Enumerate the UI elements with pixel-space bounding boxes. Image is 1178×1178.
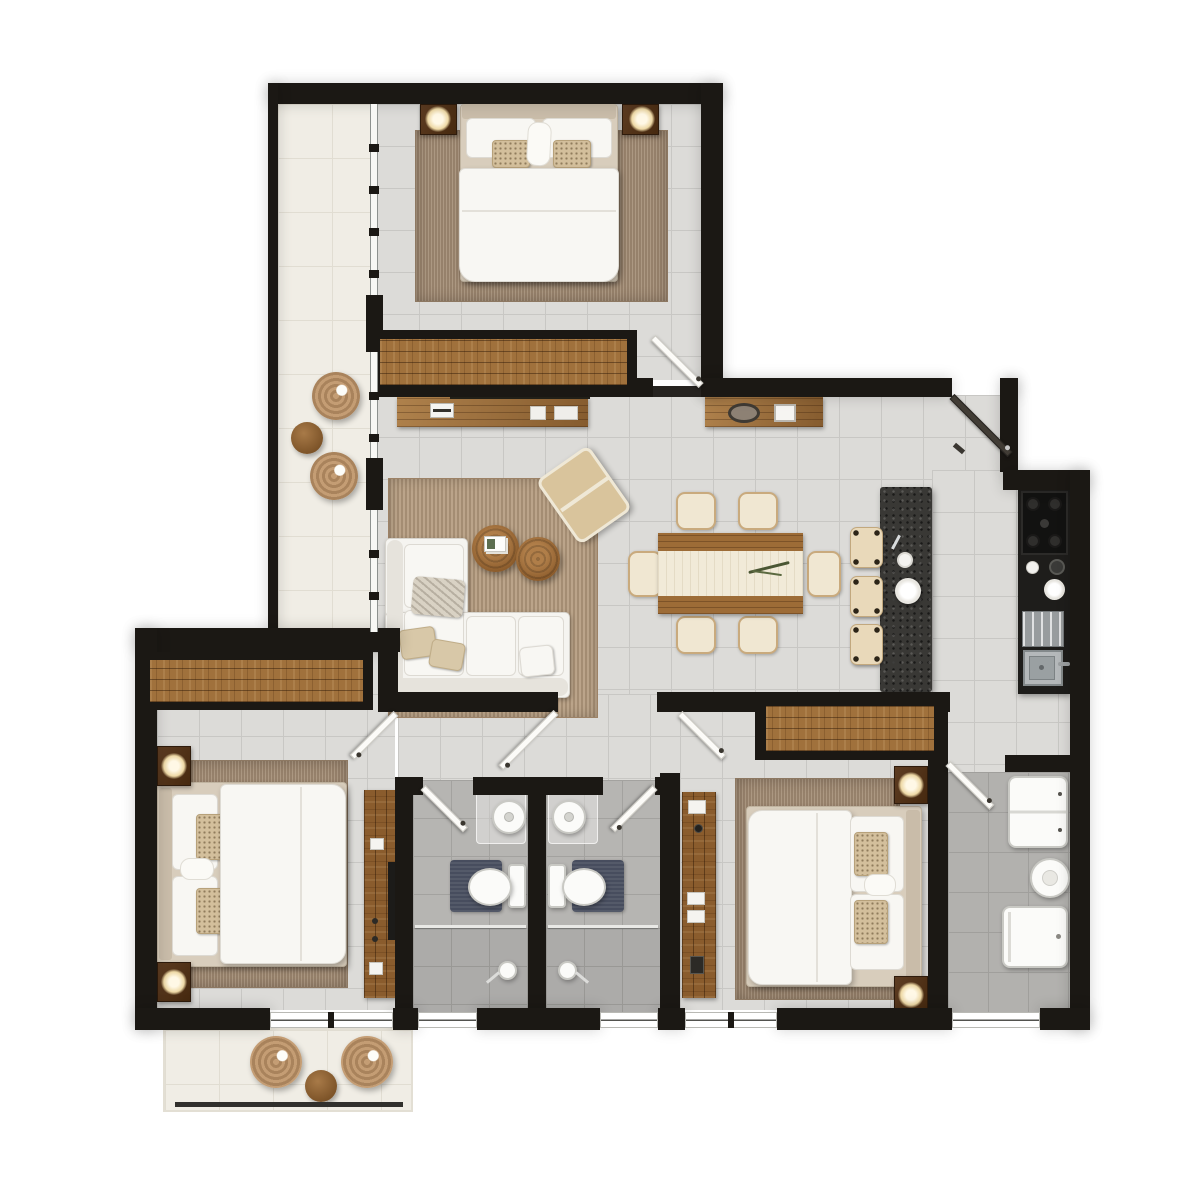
glass-mullion-3: [369, 228, 379, 236]
balcony-bottom-side-table: [305, 1070, 337, 1102]
island-plate-small: [897, 552, 913, 568]
bed-left-duvet-fold: [300, 787, 302, 961]
bedroom-left-desk-logo: [369, 962, 383, 975]
balcony-glass-wall-2: [370, 352, 378, 458]
wall-right-outer: [1070, 470, 1090, 1030]
wall-bath-right-jamb: [655, 777, 665, 795]
glass-mullion-4: [369, 270, 379, 278]
dish-drainboard: [1022, 611, 1064, 647]
bed-right-accent-pillow-1: [854, 832, 888, 876]
kitchen-sink-drain: [1039, 665, 1044, 670]
balcony-left-floor: [278, 104, 372, 632]
island-plate-large: [895, 578, 921, 604]
bedroom-left-tv: [388, 862, 395, 940]
wall-bedroom-left-top: [135, 628, 400, 652]
stove-burner-center: [1040, 519, 1049, 528]
shower-head-left: [498, 961, 517, 980]
sliding-door-mullion: [328, 1012, 334, 1028]
entry-decor-bowl: [728, 403, 760, 423]
sofa-cushion-3: [466, 616, 516, 676]
bed-top-duvet-fold: [462, 210, 616, 212]
glass-mullion-8: [369, 592, 379, 600]
bed-right-headboard: [906, 810, 920, 983]
dining-chair-left: [628, 551, 662, 597]
entry-console-table: [705, 397, 823, 427]
bar-stool-3: [850, 624, 883, 665]
balcony-glass-wall-1: [370, 104, 378, 295]
coffee-table-book-accent: [487, 539, 495, 549]
glass-mullion-2: [369, 186, 379, 194]
bedroom-right-desk-phone: [690, 956, 704, 974]
balcony-glass-wall-3: [370, 510, 378, 632]
glass-mullion-5: [369, 392, 379, 400]
wall-hall-living: [378, 692, 558, 712]
bedroom-right-desk-lens: [694, 824, 703, 833]
grinder: [1049, 559, 1065, 575]
wall-bottom-bath-mid: [477, 1008, 600, 1030]
bed-top-accent-pillow-right: [553, 140, 591, 168]
wall-bath-left-jamb: [406, 777, 423, 795]
bedroom-left-desk-speaker-1: [372, 918, 378, 924]
glass-mullion-6: [369, 434, 379, 442]
balcony-left-pouf-2: [310, 452, 358, 500]
stove-burner-4: [1048, 534, 1062, 548]
bed-right-center-ornament: [864, 874, 896, 896]
wardrobe-left-wood: [150, 660, 363, 702]
bed-left-headboard: [159, 788, 172, 960]
coffee-cup: [1026, 561, 1039, 574]
vessel-sink-left-drain: [504, 812, 514, 822]
utility-cabinet: [1008, 776, 1068, 848]
wall-bottom-left: [135, 1008, 270, 1030]
sofa-pillow-tan-2: [428, 638, 466, 671]
balcony-left-side-table: [291, 422, 323, 454]
bed-top-duvet: [459, 168, 619, 282]
utility-basin-inner: [1042, 870, 1058, 886]
window-bath-left: [418, 1012, 477, 1028]
sofa-throw-blanket: [410, 576, 465, 618]
lamp-right-top: [898, 772, 924, 798]
bar-stool-1: [850, 527, 883, 568]
window-bedroom-right-mullion: [728, 1012, 734, 1028]
bedroom-right-desk-pad: [688, 800, 706, 814]
wall-utility-top: [1005, 755, 1070, 772]
kitchen-faucet: [1058, 662, 1070, 666]
washing-machine-panel: [1008, 912, 1011, 962]
bedroom-right-desk-card-2: [687, 910, 705, 923]
dining-chair-top-1: [676, 492, 716, 530]
wall-bath-center: [528, 777, 546, 1030]
balcony-bottom-pouf-1: [250, 1036, 302, 1088]
entry-photo-frame: [774, 404, 796, 422]
washing-machine-dot: [1056, 934, 1061, 939]
wall-bedroom-top-right: [701, 83, 723, 397]
bed-top-accent-pillow-left: [492, 140, 530, 168]
wall-bedroom-right-left: [660, 773, 680, 1030]
laptop-keyboard-line: [433, 409, 451, 412]
coffee-table-small: [516, 537, 560, 581]
vessel-sink-right-drain: [564, 812, 574, 822]
utility-cabinet-knob-2: [1058, 828, 1062, 832]
wall-top: [268, 83, 723, 104]
bedroom-right-desk-card-1: [687, 892, 705, 905]
balcony-left-pouf-1: [312, 372, 360, 420]
bed-left-center-ornament: [180, 858, 214, 880]
wall-bottom-right-corner: [1040, 1008, 1090, 1030]
wall-bottom-bedroom-right: [777, 1008, 952, 1030]
window-bath-right: [600, 1012, 658, 1028]
toilet-left-bowl: [468, 868, 512, 906]
bedroom-left-desk-speaker-2: [372, 936, 378, 942]
balcony-bottom-railing: [175, 1102, 403, 1107]
dining-chair-right: [807, 551, 841, 597]
wall-bedroom-left-bath: [395, 777, 413, 1030]
dining-chair-bottom-1: [676, 616, 716, 654]
stove-burner-3: [1026, 534, 1040, 548]
shower-head-right: [558, 961, 577, 980]
stove-burner-1: [1026, 497, 1040, 511]
wall-bottom-pillar-1: [393, 1008, 418, 1030]
window-utility: [952, 1012, 1040, 1028]
dining-chair-bottom-2: [738, 616, 778, 654]
wardrobe-top-wood: [380, 339, 627, 385]
bed-top-center-ornament: [526, 121, 552, 166]
wall-balcony-left: [268, 83, 278, 632]
bed-right-duvet-fold: [816, 813, 818, 982]
console-pad-1: [530, 406, 546, 420]
stove-burner-2: [1048, 497, 1062, 511]
glass-mullion-1: [369, 144, 379, 152]
floor-plan: [0, 0, 1178, 1178]
lamp-left-top: [161, 753, 187, 779]
utility-cabinet-knob-1: [1058, 792, 1062, 796]
lamp-left-bottom: [161, 969, 187, 995]
threshold-bedroom-top: [653, 386, 701, 397]
bar-stool-2: [850, 576, 883, 617]
wall-glass-stub-2: [366, 458, 383, 510]
bedroom-left-desk-card: [370, 838, 384, 850]
lamp-right-bottom: [898, 982, 924, 1008]
lamp-top-right: [629, 106, 655, 132]
glass-mullion-7: [369, 550, 379, 558]
wall-bath-top-mid: [473, 777, 603, 795]
wardrobe-right-wood: [766, 706, 934, 751]
wall-entry-right: [1000, 378, 1018, 472]
wall-entry-top-a: [701, 378, 952, 397]
balcony-bottom-pouf-2: [341, 1036, 393, 1088]
shower-screen-left: [415, 925, 526, 928]
bed-right-duvet: [748, 810, 852, 985]
lamp-top-left: [425, 106, 451, 132]
dining-chair-top-2: [738, 492, 778, 530]
sofa-pillow-white: [519, 644, 556, 677]
console-pad-2: [554, 406, 578, 420]
wall-bottom-pillar-2: [658, 1008, 685, 1030]
toilet-right-bowl: [562, 868, 606, 906]
bed-top-headboard: [462, 104, 616, 119]
shower-screen-right: [548, 925, 658, 928]
bed-right-accent-pillow-2: [854, 900, 888, 944]
bed-left-duvet: [220, 784, 346, 964]
serving-plate: [1044, 579, 1065, 600]
